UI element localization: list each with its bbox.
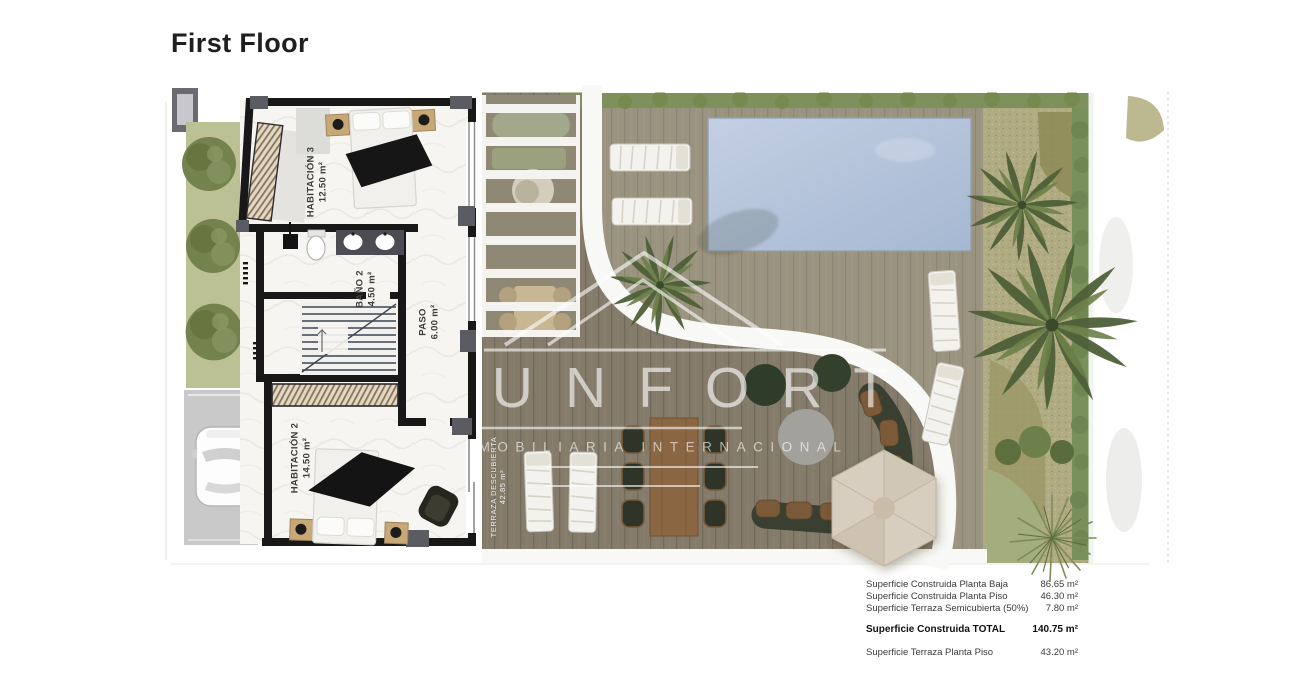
areas-row: Superficie Construida Planta Baja 86.65 …: [866, 579, 1078, 591]
room-label-habitacion-3: HABITACIÓN 3 12.50 m²: [306, 147, 329, 217]
top-hedge: [560, 91, 1092, 109]
floor-plan-page: First Floor: [0, 0, 1290, 698]
outdoor-bench: [492, 148, 566, 169]
areas-row: Superficie Construida Planta Piso 46.30 …: [866, 591, 1078, 603]
dining-set: [622, 418, 726, 536]
stairs: [300, 301, 398, 375]
room-label-habitacion-2: HABITACIÓN 2 14.50 m²: [290, 423, 313, 493]
watermark-subtitle: MOBILIARIA INTERNACIONAL: [472, 440, 849, 455]
floor-plan-graphic: [0, 0, 1290, 698]
semicovered-terrace: [482, 95, 580, 337]
room-label-bano-2: BAÑO 2 4.50 m²: [355, 270, 378, 308]
garden-tree: [186, 219, 240, 273]
outdoor-sofa: [492, 112, 570, 138]
wardrobe-hab2: [272, 384, 398, 406]
garden-tree: [182, 137, 236, 191]
swimming-pool: [692, 118, 971, 264]
terrace-and-garden: [460, 85, 1164, 581]
areas-table: Superficie Construida Planta Baja 86.65 …: [866, 579, 1078, 659]
areas-row: Superficie Terraza Planta Piso 43.20 m²: [866, 647, 1078, 659]
garden-tree: [186, 304, 243, 361]
room-label-paso: PASO 6.00 m²: [418, 305, 441, 340]
watermark-brand: UNFORT: [460, 355, 920, 421]
areas-row-total: Superficie Construida TOTAL 140.75 m²: [866, 623, 1078, 637]
areas-row: Superficie Terraza Semicubierta (50%) 7.…: [866, 603, 1078, 615]
